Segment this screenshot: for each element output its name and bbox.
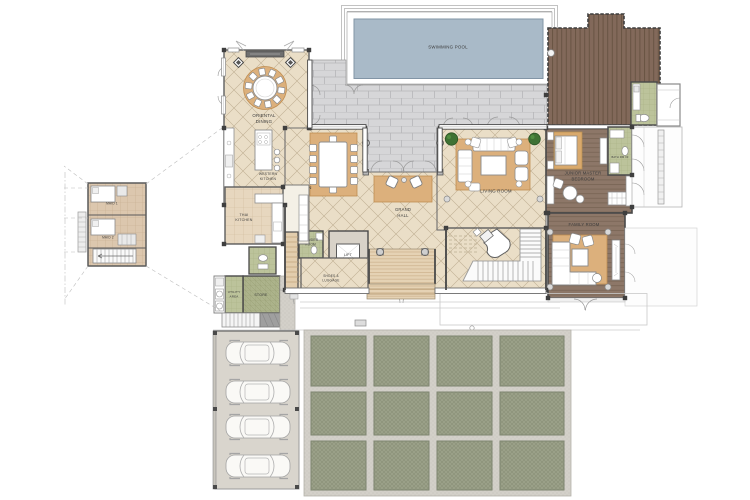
svg-text:KITCHEN: KITCHEN: [260, 177, 277, 181]
svg-text:BEDROOM: BEDROOM: [571, 177, 594, 182]
svg-text:UTILITY: UTILITY: [228, 290, 241, 294]
svg-text:WESTERN: WESTERN: [259, 172, 278, 176]
svg-text:HALL: HALL: [397, 213, 409, 218]
svg-text:JUNIOR MASTER: JUNIOR MASTER: [565, 171, 602, 176]
svg-text:BATH RM 03: BATH RM 03: [611, 155, 628, 159]
svg-text:GRAND: GRAND: [395, 207, 411, 212]
svg-text:KITCHEN: KITCHEN: [235, 218, 252, 222]
svg-text:THAI: THAI: [240, 213, 249, 217]
svg-text:MAID 1: MAID 1: [106, 202, 118, 206]
svg-text:LUGGAGE: LUGGAGE: [322, 279, 339, 283]
svg-text:SHOES &: SHOES &: [323, 274, 339, 278]
svg-text:LIVING ROOM: LIVING ROOM: [480, 189, 512, 194]
svg-text:DINING: DINING: [256, 119, 273, 124]
svg-text:FAMILY ROOM: FAMILY ROOM: [569, 222, 600, 227]
svg-text:ORIENTAL: ORIENTAL: [252, 113, 276, 118]
svg-text:AREA: AREA: [230, 295, 239, 299]
svg-text:LIFT: LIFT: [344, 253, 353, 257]
svg-text:MAID 2: MAID 2: [102, 236, 114, 240]
svg-text:SWIMMING POOL: SWIMMING POOL: [428, 45, 468, 50]
svg-text:STORE: STORE: [254, 293, 268, 297]
